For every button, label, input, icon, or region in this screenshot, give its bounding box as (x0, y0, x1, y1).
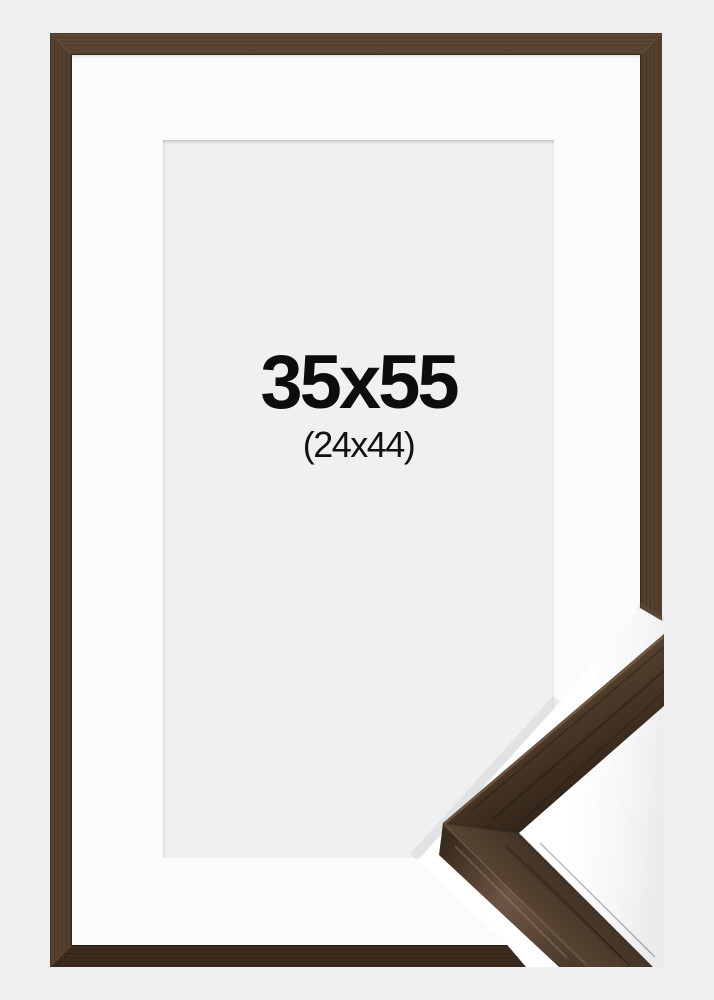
frame-corner-sample (0, 0, 714, 1000)
product-image: 35x55 (24x44) (0, 0, 714, 1000)
